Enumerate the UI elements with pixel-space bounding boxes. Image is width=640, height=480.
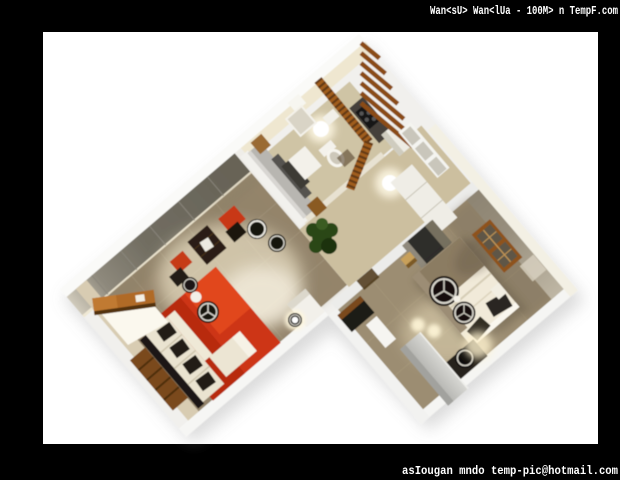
svg-text:asIougan mndo temp-pic@hotmail: asIougan mndo temp-pic@hotmail.com xyxy=(402,464,618,478)
svg-text:Wan<sU> Wan<lUa - 100M> n Temp: Wan<sU> Wan<lUa - 100M> n TempF.com xyxy=(430,4,618,18)
